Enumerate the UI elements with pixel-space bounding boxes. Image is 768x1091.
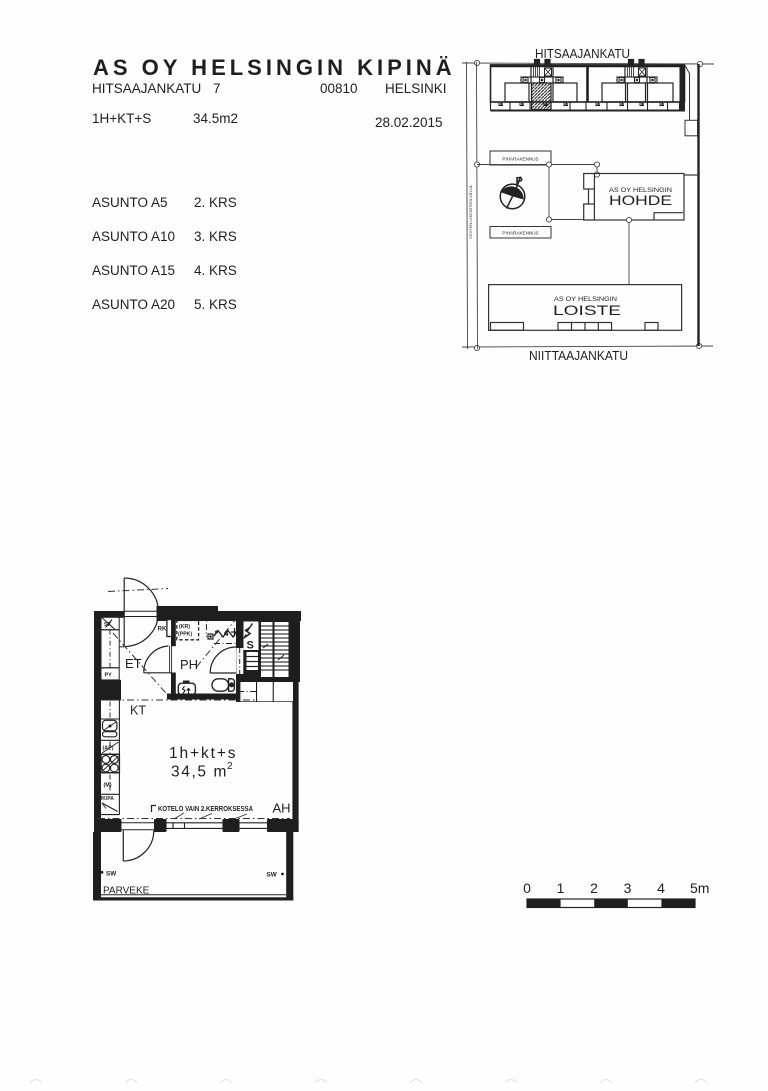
svg-text:3. KRS: 3. KRS [194, 229, 237, 244]
svg-text:SW: SW [267, 872, 277, 879]
svg-text:HOHDE: HOHDE [609, 193, 672, 208]
svg-text:00810: 00810 [320, 81, 358, 96]
svg-text:KEVYEN LIIKENTEEN VÄYLÄ: KEVYEN LIIKENTEEN VÄYLÄ [468, 185, 473, 239]
svg-text:AS OY HELSINGIN: AS OY HELSINGIN [554, 296, 617, 303]
svg-text:2: 2 [227, 761, 233, 772]
svg-text:P: P [516, 176, 523, 188]
svg-text:7: 7 [213, 81, 221, 96]
svg-text:4. KRS: 4. KRS [194, 263, 237, 278]
svg-text:(PPK): (PPK) [178, 632, 192, 638]
svg-text:5m: 5m [690, 880, 709, 896]
svg-text:KT: KT [130, 704, 146, 718]
svg-text:34,5 m: 34,5 m [171, 764, 228, 781]
svg-text:4: 4 [657, 880, 665, 896]
svg-text:ASUNTO A15: ASUNTO A15 [92, 263, 175, 278]
svg-text:(M): (M) [104, 783, 112, 789]
svg-text:1: 1 [557, 880, 565, 896]
svg-text:5. KRS: 5. KRS [194, 297, 237, 312]
svg-text:PY: PY [105, 673, 113, 679]
svg-text:KOTELO VAIN 2.KERROKSESSA: KOTELO VAIN 2.KERROKSESSA [158, 804, 253, 813]
svg-text:1H+KT+S: 1H+KT+S [92, 111, 151, 126]
svg-text:PARVEKE: PARVEKE [103, 886, 150, 897]
svg-text:SK: SK [104, 622, 112, 628]
svg-text:LOISTE: LOISTE [553, 303, 621, 318]
svg-text:(KR): (KR) [179, 624, 190, 630]
svg-text:NIITTAAJANKATU: NIITTAAJANKATU [529, 349, 628, 363]
svg-text:PH: PH [180, 657, 198, 672]
svg-text:ASUNTO A10: ASUNTO A10 [92, 229, 175, 244]
svg-text:34.5m2: 34.5m2 [193, 111, 238, 126]
svg-text:AS OY HELSINGIN KIPINÄ: AS OY HELSINGIN KIPINÄ [93, 55, 456, 80]
svg-text:HITSAAJANKATU: HITSAAJANKATU [92, 81, 201, 96]
svg-text:HELSINKI: HELSINKI [385, 81, 447, 96]
svg-text:ASUNTO A20: ASUNTO A20 [92, 297, 175, 312]
svg-text:PIHARAKENNUS: PIHARAKENNUS [502, 231, 538, 236]
svg-text:28.02.2015: 28.02.2015 [375, 115, 443, 130]
svg-text:0: 0 [523, 880, 531, 896]
svg-text:2: 2 [590, 880, 598, 896]
svg-text:JK/PA: JK/PA [100, 796, 115, 802]
svg-text:RK: RK [158, 626, 167, 633]
svg-text:S: S [247, 640, 254, 652]
svg-text:ET: ET [125, 656, 142, 671]
svg-text:SW: SW [106, 871, 116, 878]
svg-text:AH: AH [273, 801, 291, 816]
svg-text:1h+kt+s: 1h+kt+s [169, 745, 237, 762]
svg-text:PIHARAKENNUS: PIHARAKENNUS [502, 157, 538, 162]
svg-text:3: 3 [624, 880, 632, 896]
svg-text:2. KRS: 2. KRS [194, 195, 237, 210]
svg-text:ASUNTO A5: ASUNTO A5 [92, 195, 168, 210]
